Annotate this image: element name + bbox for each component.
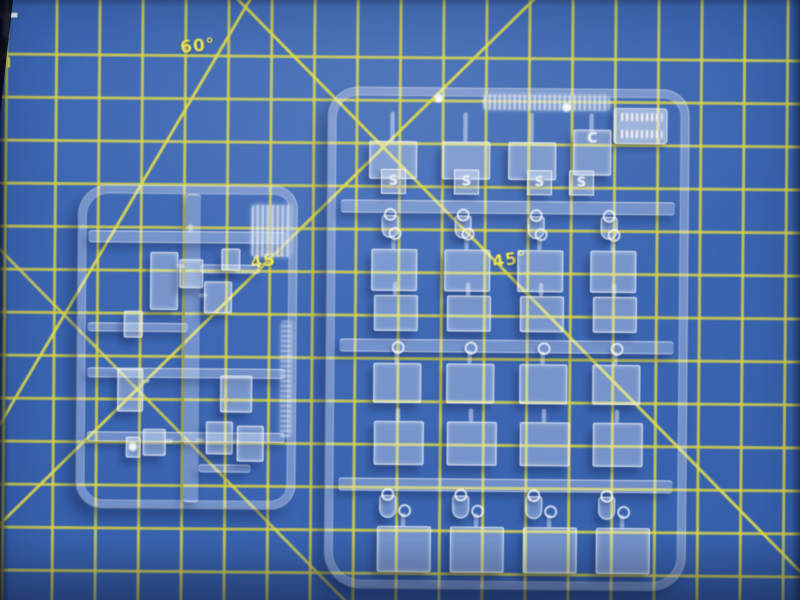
angle-label-60: 60° <box>179 35 216 58</box>
sprue-gate-ring <box>471 505 484 518</box>
part-tag: S <box>569 170 594 195</box>
sprue-part <box>124 311 143 338</box>
sprue-part <box>450 526 504 572</box>
mat-markings-layer: 60° 45° 45° T h CSSSS <box>0 0 800 600</box>
sprue-part: C <box>573 130 611 176</box>
sprue-gate-ring <box>392 341 405 354</box>
sprue-part <box>592 365 640 405</box>
highlight-speck <box>128 441 138 453</box>
highlight-speck <box>562 101 572 113</box>
sprue-stem <box>615 410 619 423</box>
mat-edge-letter-top: T <box>0 6 18 46</box>
sprue-part <box>237 426 264 462</box>
sprue-gate-ring <box>617 506 630 519</box>
sprue-stem <box>589 114 593 132</box>
mat-edge-letter-bottom: h <box>0 48 12 73</box>
sprue-stem <box>529 113 533 142</box>
sprue-stem <box>196 438 204 442</box>
part-tag: S <box>527 170 552 195</box>
highlight-speck <box>434 92 444 104</box>
embossed-marking <box>484 95 610 111</box>
sprue-part <box>523 527 577 573</box>
sprue-part <box>519 364 567 404</box>
embossed-marking <box>280 321 292 437</box>
sprue-part <box>596 528 650 574</box>
sprue-stem <box>390 112 394 141</box>
sprue-stem <box>542 409 546 422</box>
sprue-part <box>520 296 564 332</box>
part-letter-c: C <box>587 131 597 147</box>
embossed-marking <box>251 205 291 257</box>
sprue-stem <box>612 284 616 297</box>
sprue-gate-ring <box>527 489 540 502</box>
sprue-gate-ring <box>603 210 616 223</box>
cutting-mat: 60° 45° 45° T h CSSSS <box>0 0 800 600</box>
sprue-corner-tab <box>613 108 667 144</box>
sprue-gate-ring <box>538 342 551 355</box>
sprue-gate-ring <box>384 208 397 221</box>
sprue-runner <box>198 464 250 472</box>
sprue-part <box>447 421 497 465</box>
sprue-part <box>593 423 643 467</box>
sprue-gate-ring <box>457 208 470 221</box>
sprue-stem <box>396 408 400 421</box>
sprue-stem <box>393 282 397 295</box>
sprue-stem <box>539 283 543 296</box>
sprue-part <box>374 295 418 331</box>
sprue-gate-ring <box>530 209 543 222</box>
sprue-gate-ring <box>454 488 467 501</box>
sprue-stem <box>189 224 193 232</box>
sprue-stem <box>466 283 470 296</box>
sprue-part <box>374 421 424 465</box>
sprue-gate-ring <box>600 490 613 503</box>
sprue-part <box>220 375 252 412</box>
part-tag: S <box>381 169 406 194</box>
sprue-part <box>520 422 570 466</box>
sprue-stem <box>165 439 173 443</box>
sprue-part <box>593 297 637 333</box>
sprue-part <box>221 248 240 270</box>
sprue-part <box>373 363 421 403</box>
sprue-part <box>143 429 166 456</box>
sprue-part <box>204 281 232 313</box>
sprue-part <box>179 259 203 288</box>
part-tag: S <box>454 169 479 194</box>
sprue-stem <box>469 409 473 422</box>
sprue-part <box>117 369 143 412</box>
sprue-gate-ring <box>611 343 624 356</box>
sprue-gate-ring <box>544 505 557 518</box>
sprue-part <box>150 252 179 310</box>
sprue-part <box>377 526 431 572</box>
sprue-part <box>447 295 491 331</box>
sprue-part <box>206 421 233 454</box>
sprue-gate-ring <box>465 342 478 355</box>
sprue-gate-ring <box>381 488 394 501</box>
photo-canvas: 60° 45° 45° T h CSSSS <box>0 0 800 600</box>
sprue-gate-ring <box>398 504 411 517</box>
sprue-stem <box>463 113 467 142</box>
sprue-part <box>446 363 494 403</box>
